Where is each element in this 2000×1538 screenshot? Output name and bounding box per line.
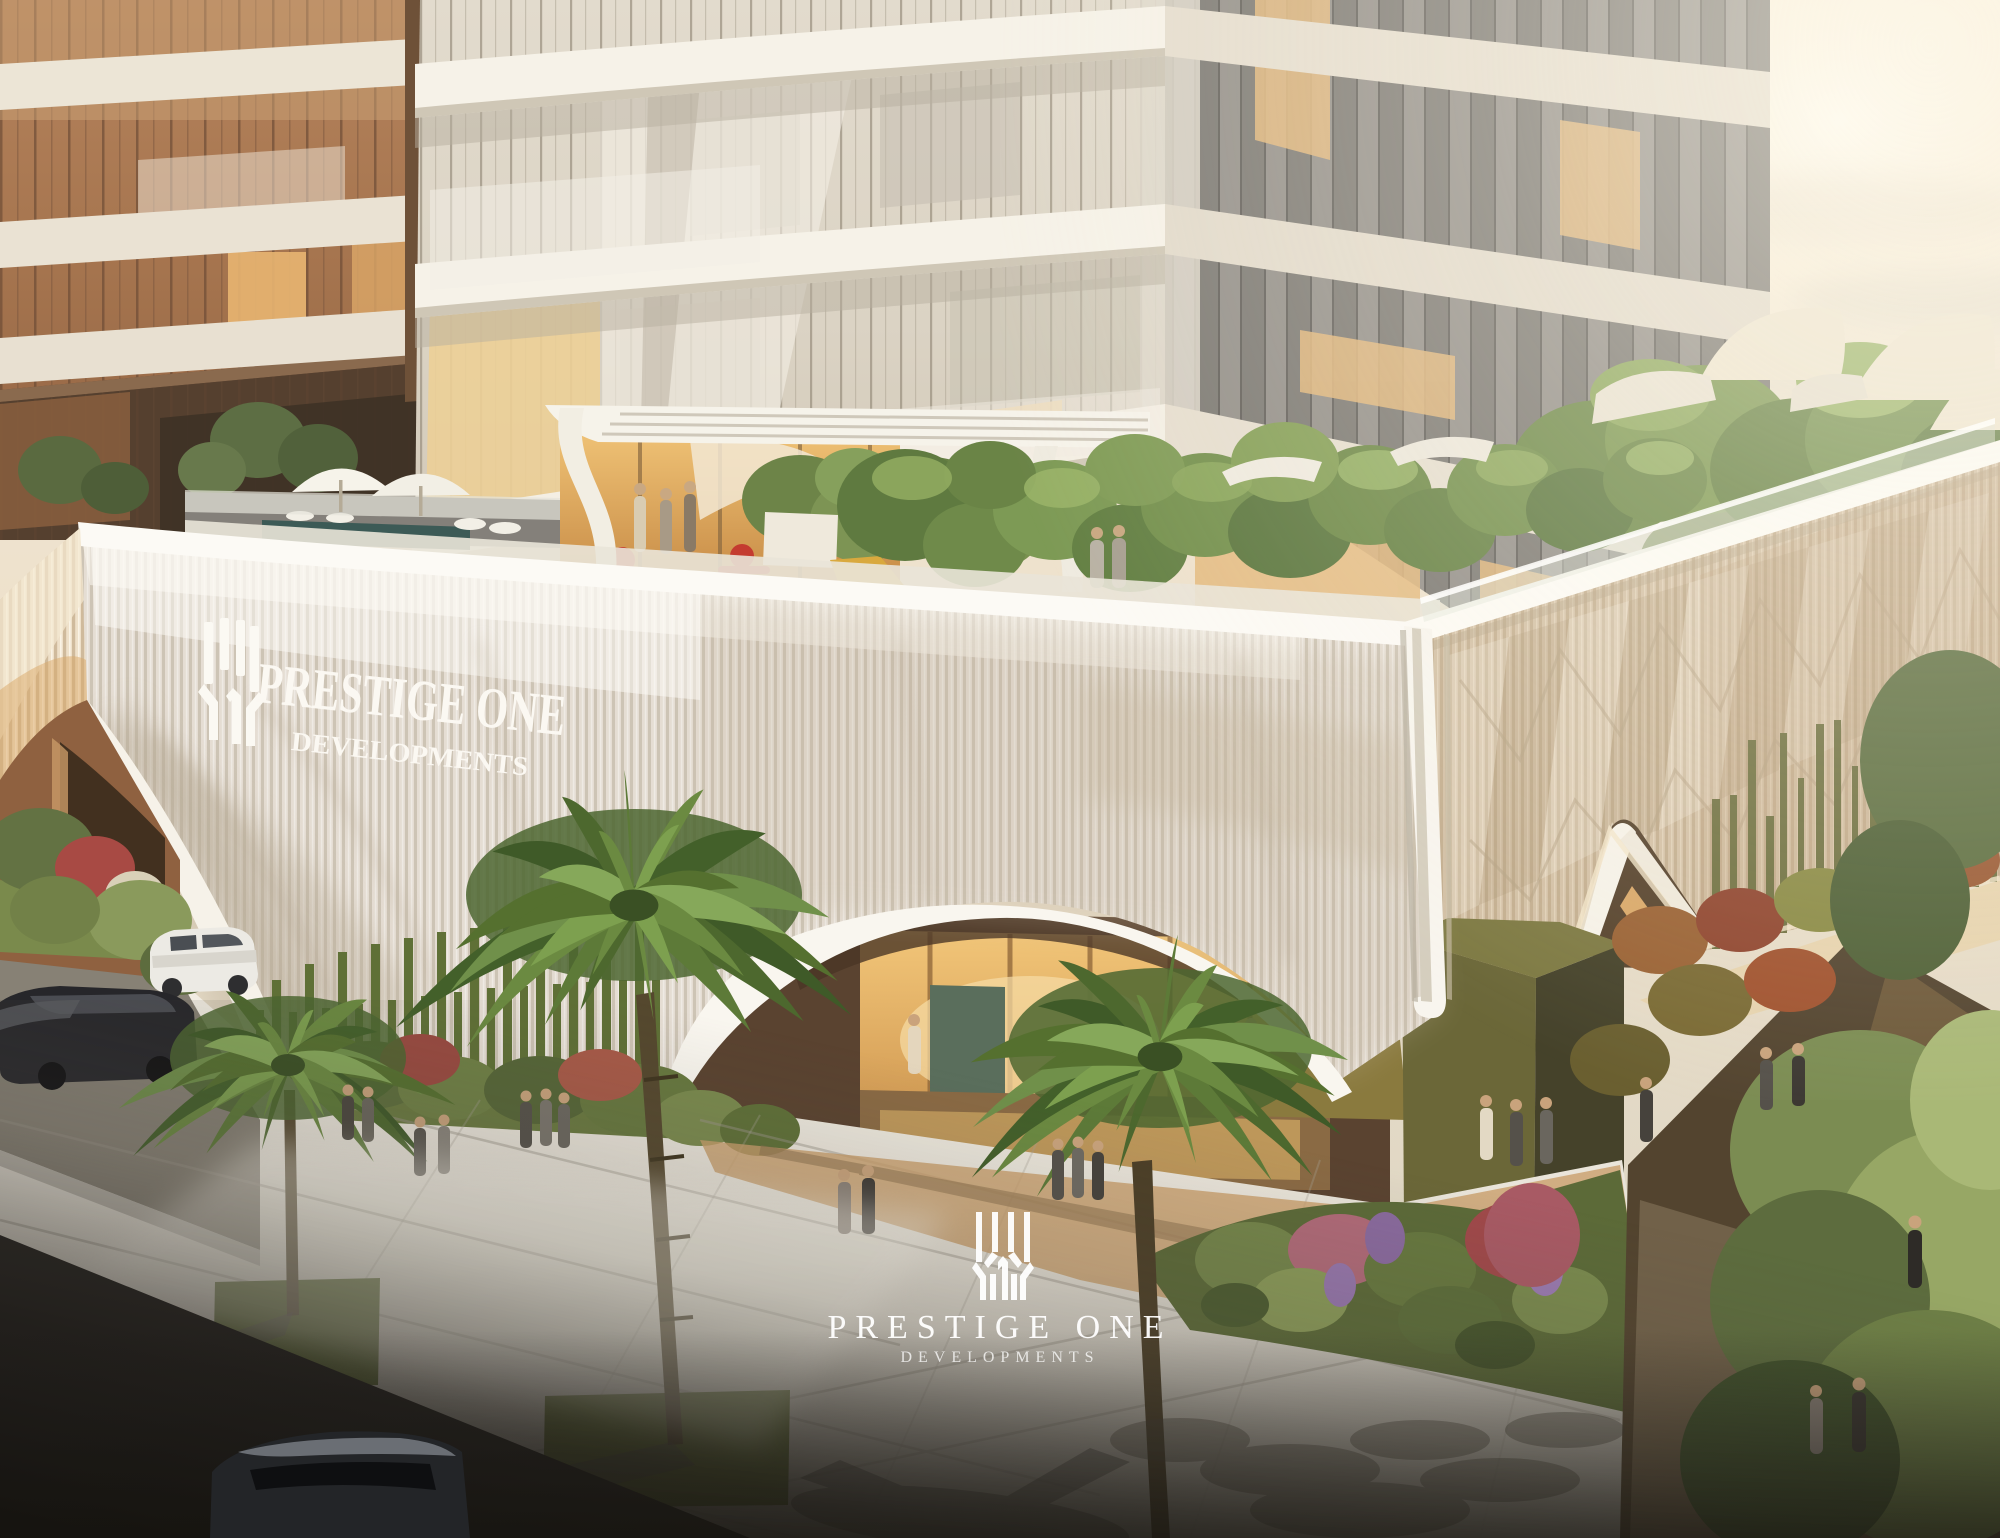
svg-text:PRESTIGE ONE: PRESTIGE ONE xyxy=(827,1309,1172,1346)
svg-text:DEVELOPMENTS: DEVELOPMENTS xyxy=(900,1349,1099,1366)
